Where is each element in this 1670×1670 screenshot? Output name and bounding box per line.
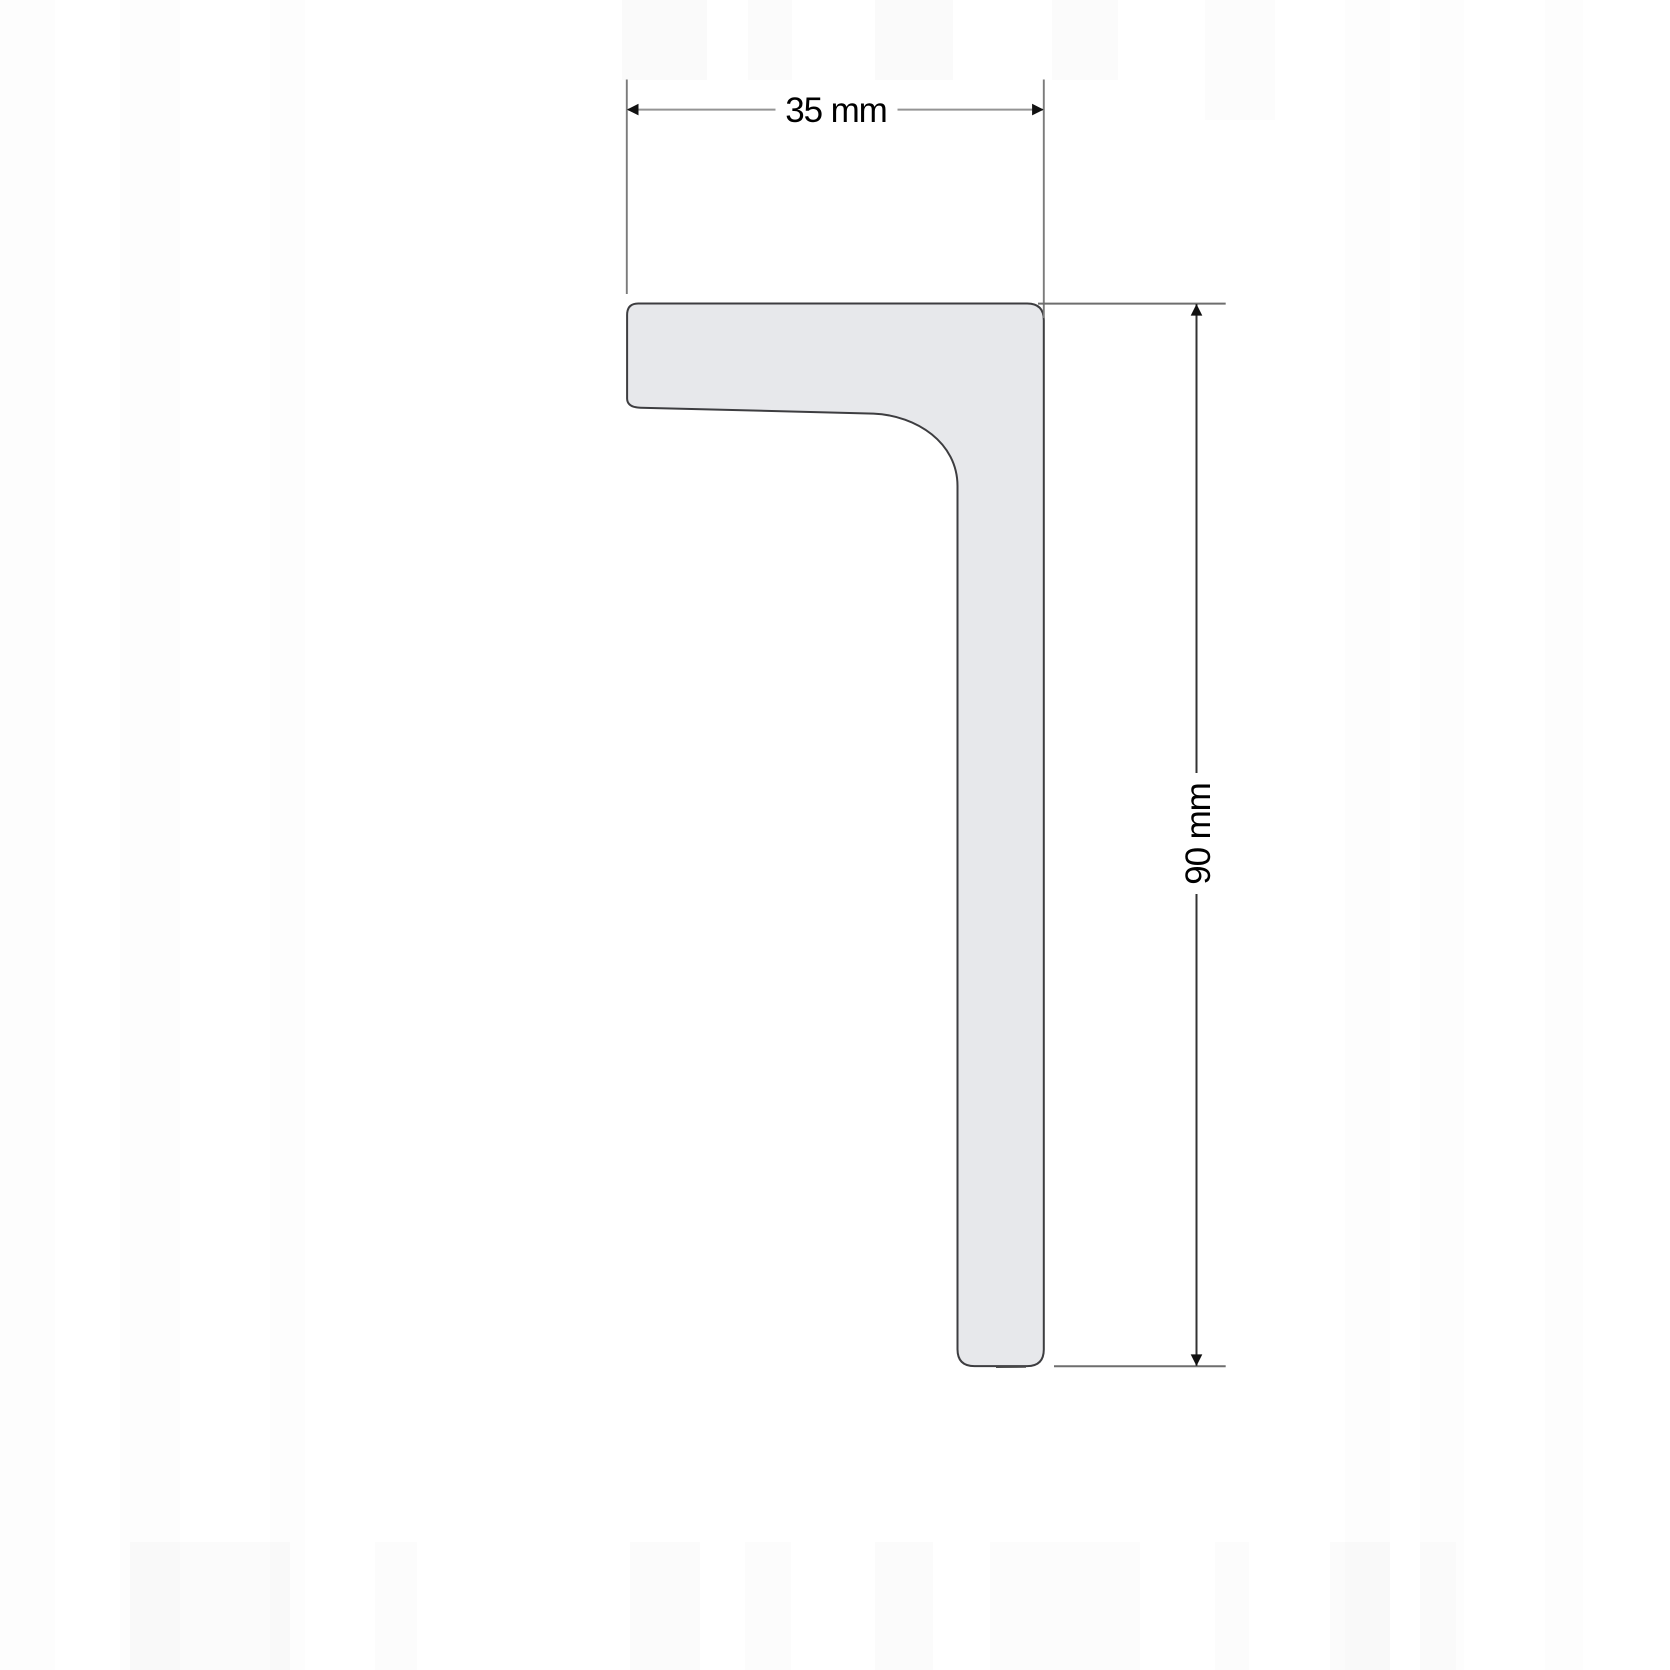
svg-text:90 mm: 90 mm <box>1179 783 1218 884</box>
svg-text:35 mm: 35 mm <box>785 91 886 130</box>
